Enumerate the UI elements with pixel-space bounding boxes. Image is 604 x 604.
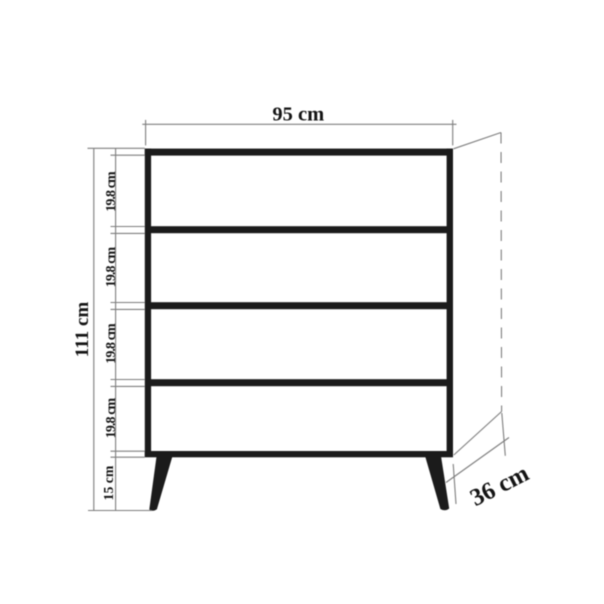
svg-text:19.8 cm: 19.8 cm — [104, 323, 119, 364]
svg-text:111 cm: 111 cm — [72, 302, 93, 358]
svg-text:19.8 cm: 19.8 cm — [104, 171, 119, 212]
svg-text:19.8 cm: 19.8 cm — [104, 397, 119, 438]
svg-text:95 cm: 95 cm — [272, 104, 324, 126]
svg-text:15 cm: 15 cm — [101, 465, 116, 500]
svg-text:19.8 cm: 19.8 cm — [104, 246, 119, 287]
